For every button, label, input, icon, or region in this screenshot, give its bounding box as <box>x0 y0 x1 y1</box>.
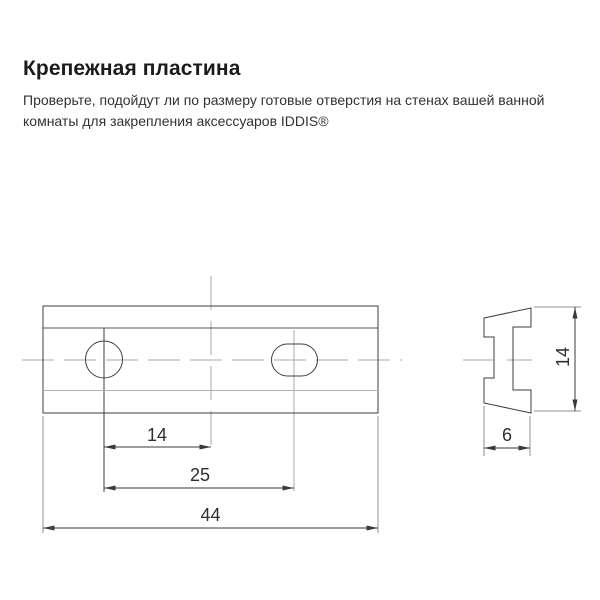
dim-label-side-height: 14 <box>553 347 573 367</box>
front-view: 14 25 44 <box>22 276 402 533</box>
technical-drawing: 14 25 44 14 6 <box>0 0 600 600</box>
dim-label-hole-to-center: 14 <box>147 425 167 445</box>
dim-label-total-width: 44 <box>200 505 220 525</box>
dim-label-hole-spacing: 25 <box>190 465 210 485</box>
page: Крепежная пластина Проверьте, подойдут л… <box>0 0 600 600</box>
dim-label-depth: 6 <box>502 425 512 445</box>
side-view: 14 6 <box>463 307 581 456</box>
